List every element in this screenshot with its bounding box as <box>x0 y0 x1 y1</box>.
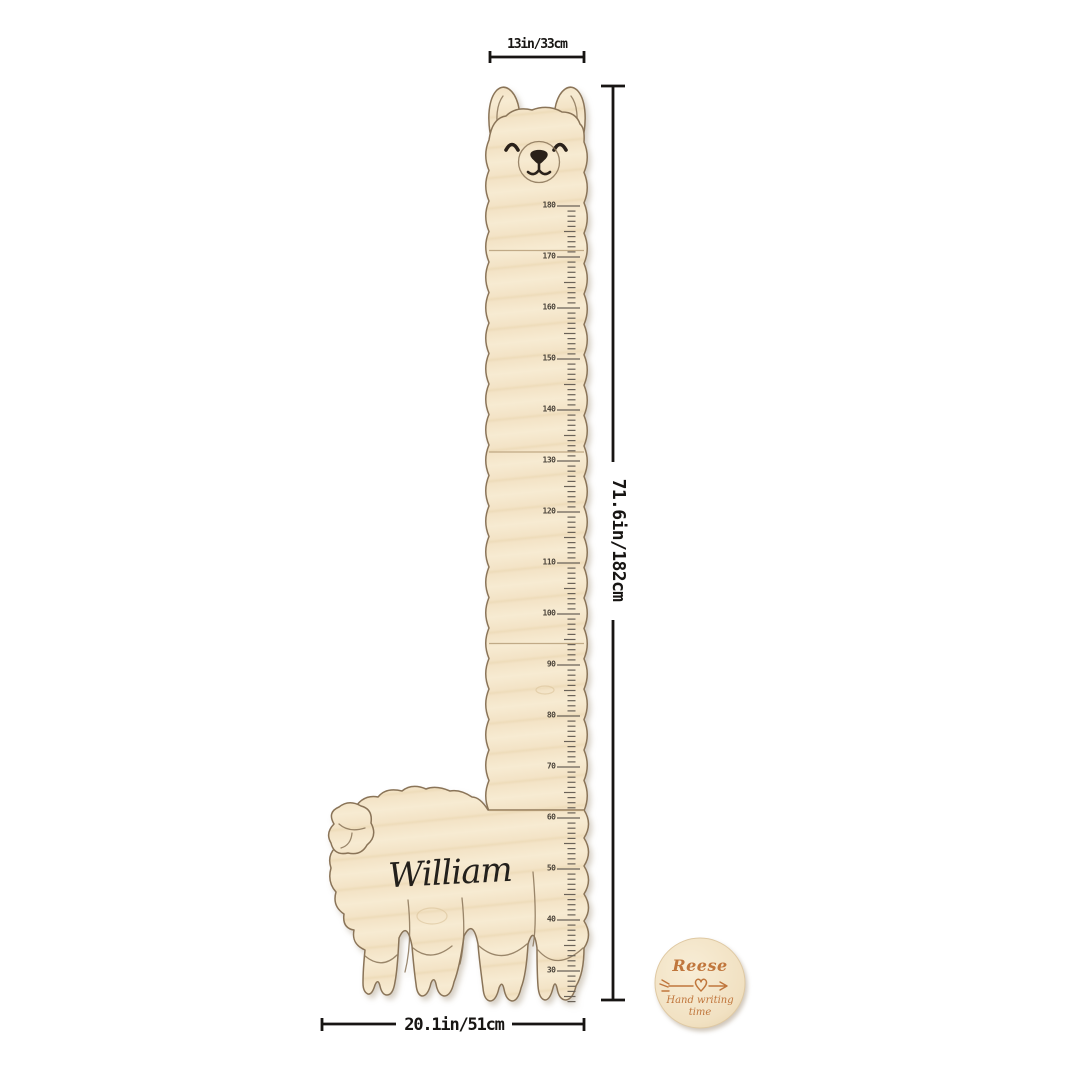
dimension-line <box>490 51 584 63</box>
ruler-number-100: 100 <box>543 609 557 618</box>
ruler-number-70: 70 <box>547 762 556 771</box>
badge-caption-line2: time <box>689 1007 712 1018</box>
growth-chart-illustration: 13in/33cm 71.6in/182cm 20.1in/51cm <box>0 0 1080 1080</box>
ruler-number-130: 130 <box>543 456 557 465</box>
badge-caption-line1: Hand writing <box>665 995 733 1006</box>
ruler-number-90: 90 <box>547 660 556 669</box>
ruler-number-30: 30 <box>547 966 556 975</box>
engraved-name: William <box>387 850 512 896</box>
height-dimension: 71.6in/182cm <box>601 86 629 1000</box>
product-photo: 13in/33cm 71.6in/182cm 20.1in/51cm <box>0 0 1080 1080</box>
ruler-number-170: 170 <box>543 252 557 261</box>
ruler-number-50: 50 <box>547 864 556 873</box>
ruler-number-140: 140 <box>543 405 557 414</box>
bottom-width-dimension: 20.1in/51cm <box>322 1015 584 1035</box>
ruler-number-160: 160 <box>543 303 557 312</box>
llama-growth-ruler: 1801701601501401301201101009080706050403… <box>329 87 589 1001</box>
total-height-label: 71.6in/182cm <box>608 479 629 603</box>
body-width-label: 20.1in/51cm <box>404 1015 504 1035</box>
ruler-number-40: 40 <box>547 915 556 924</box>
llama-tail <box>329 803 374 854</box>
ruler-number-60: 60 <box>547 813 556 822</box>
top-width-dimension: 13in/33cm <box>490 37 584 63</box>
ruler-number-150: 150 <box>543 354 557 363</box>
ruler-number-110: 110 <box>543 558 557 567</box>
handwriting-badge: Reese Hand writing time <box>655 938 745 1028</box>
ruler-number-80: 80 <box>547 711 556 720</box>
ruler-number-180: 180 <box>543 201 557 210</box>
ruler-number-120: 120 <box>543 507 557 516</box>
badge-name: Reese <box>671 956 727 975</box>
head-width-label: 13in/33cm <box>507 37 568 52</box>
